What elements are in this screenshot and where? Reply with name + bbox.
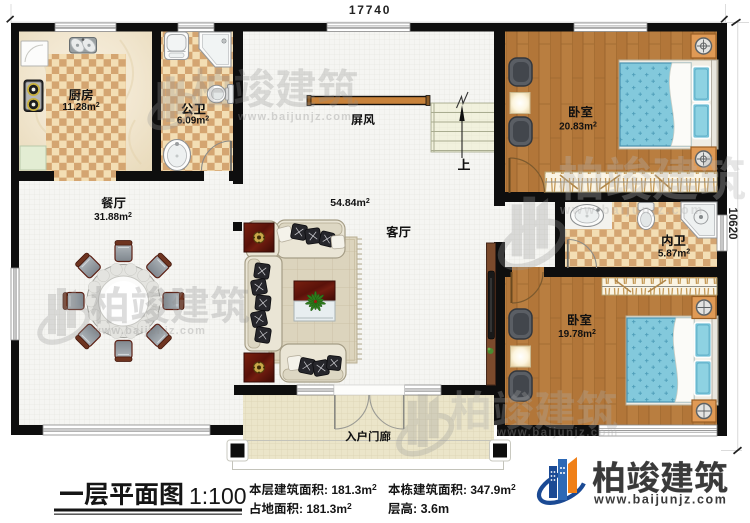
svg-text:19.78m2: 19.78m2 <box>558 329 596 340</box>
svg-text:www.baijunjz.com: www.baijunjz.com <box>91 325 206 337</box>
svg-text:: 3.6m: : 3.6m <box>413 502 449 516</box>
svg-text:31.88m2: 31.88m2 <box>94 212 132 223</box>
svg-text:10620: 10620 <box>726 208 738 240</box>
svg-text:5.87m2: 5.87m2 <box>658 249 690 260</box>
svg-text:www.baijunjz.com: www.baijunjz.com <box>237 111 352 123</box>
svg-text:54.84m2: 54.84m2 <box>330 197 370 209</box>
svg-text:20.83m2: 20.83m2 <box>559 122 597 133</box>
svg-text:: 181.3m2: : 181.3m2 <box>299 501 352 516</box>
svg-text:www.baijunjz.com: www.baijunjz.com <box>593 493 727 507</box>
svg-text:1:100: 1:100 <box>189 483 247 509</box>
svg-text:: 181.3m2: : 181.3m2 <box>324 482 377 497</box>
svg-text:: 347.9m2: : 347.9m2 <box>463 482 516 497</box>
svg-text:11.28m2: 11.28m2 <box>62 102 99 113</box>
svg-text:www.baijunjz.com: www.baijunjz.com <box>496 427 619 439</box>
svg-text:www.baijunjz.com: www.baijunjz.com <box>559 202 704 217</box>
svg-text:17740: 17740 <box>349 3 391 17</box>
